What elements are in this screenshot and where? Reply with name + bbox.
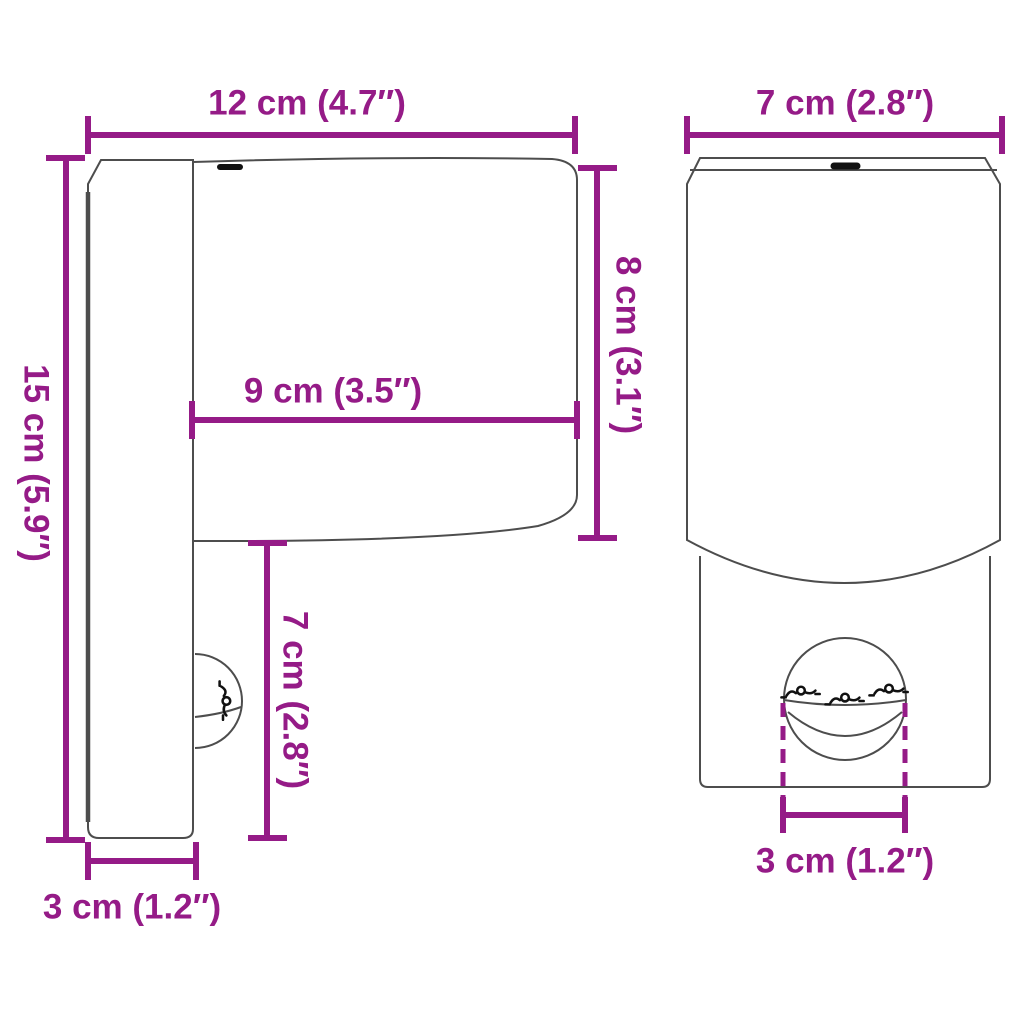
dimension-label-side-height: 15 cm (5.9″) [19, 364, 54, 562]
dimension-label-lower-height: 7 cm (2.8″) [278, 611, 313, 789]
motion-sensor-side [195, 654, 242, 748]
dimension-label-front-width: 7 cm (2.8″) [756, 86, 934, 121]
motion-sensor-front [784, 638, 906, 760]
side-view-drawing [88, 158, 577, 838]
dim-plate-depth [88, 842, 196, 880]
front-view-drawing [687, 158, 1000, 787]
dimension-label-head-depth: 9 cm (3.5″) [244, 374, 422, 409]
dimension-label-side-width: 12 cm (4.7″) [208, 86, 406, 121]
wall-plate-outline [88, 160, 193, 838]
lamp-body-outline [687, 158, 1000, 583]
lamp-head-outline [193, 158, 577, 541]
dimension-label-head-height: 8 cm (3.1″) [611, 256, 646, 434]
dimension-diagram: 12 cm (4.7″) 15 cm (5.9″) 8 cm (3.1″) 9 … [0, 0, 1024, 1024]
dimension-label-plate-depth: 3 cm (1.2″) [43, 890, 221, 925]
dimension-label-sensor-width: 3 cm (1.2″) [756, 844, 934, 879]
